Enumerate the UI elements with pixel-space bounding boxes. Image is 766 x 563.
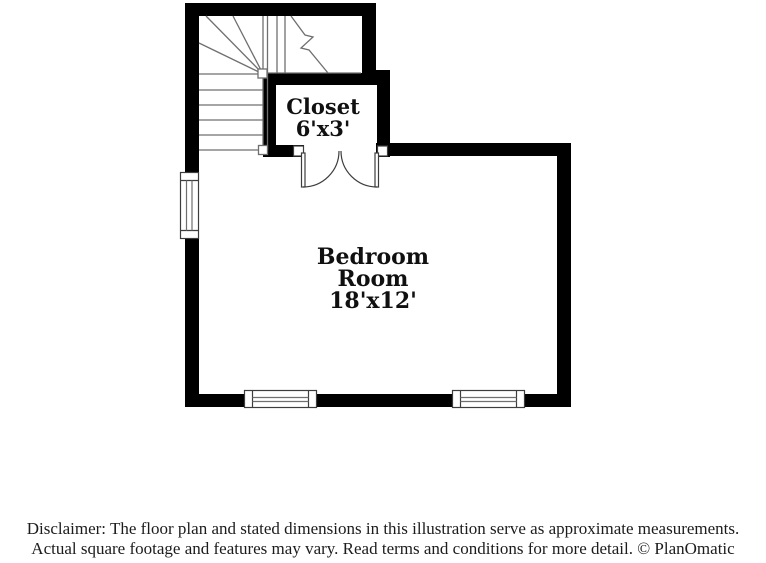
disclaimer-line-2: Actual square footage and features may v… (31, 539, 735, 558)
wall-bedroom-top (376, 143, 571, 156)
stair-winder-line (199, 43, 263, 74)
door-leaf-right (375, 153, 379, 187)
stair-break-line-icon (291, 16, 328, 73)
closet-double-door-icon (294, 146, 388, 187)
wall-right (557, 143, 571, 407)
bedroom-room-dimensions: 18'x12' (329, 288, 417, 314)
door-swing-arc-left (303, 151, 339, 187)
closet-room-dimensions: 6'x3' (296, 116, 351, 141)
wall-top (185, 3, 376, 16)
door-swing-arc-right (341, 151, 377, 187)
floor-plan-page: Closet 6'x3' Bedroom Room 18'x12' Discla… (0, 0, 766, 563)
stair-winder-line (233, 16, 263, 74)
door-leaf-left (302, 153, 306, 187)
stair-winder-line (206, 16, 263, 74)
wall-closet-top (263, 73, 390, 85)
window-left-icon (181, 173, 199, 239)
window-bottom-2-icon (453, 391, 525, 408)
wall-closet-left (263, 73, 276, 157)
window-bottom-1-icon (245, 391, 317, 408)
window-frame (453, 391, 525, 408)
disclaimer-line-1: Disclaimer: The floor plan and stated di… (27, 519, 740, 538)
floor-plan-canvas: Closet 6'x3' Bedroom Room 18'x12' Discla… (0, 0, 766, 563)
stair-post (258, 69, 267, 78)
window-frame (245, 391, 317, 408)
stair-post (259, 146, 268, 155)
window-frame (181, 173, 199, 239)
